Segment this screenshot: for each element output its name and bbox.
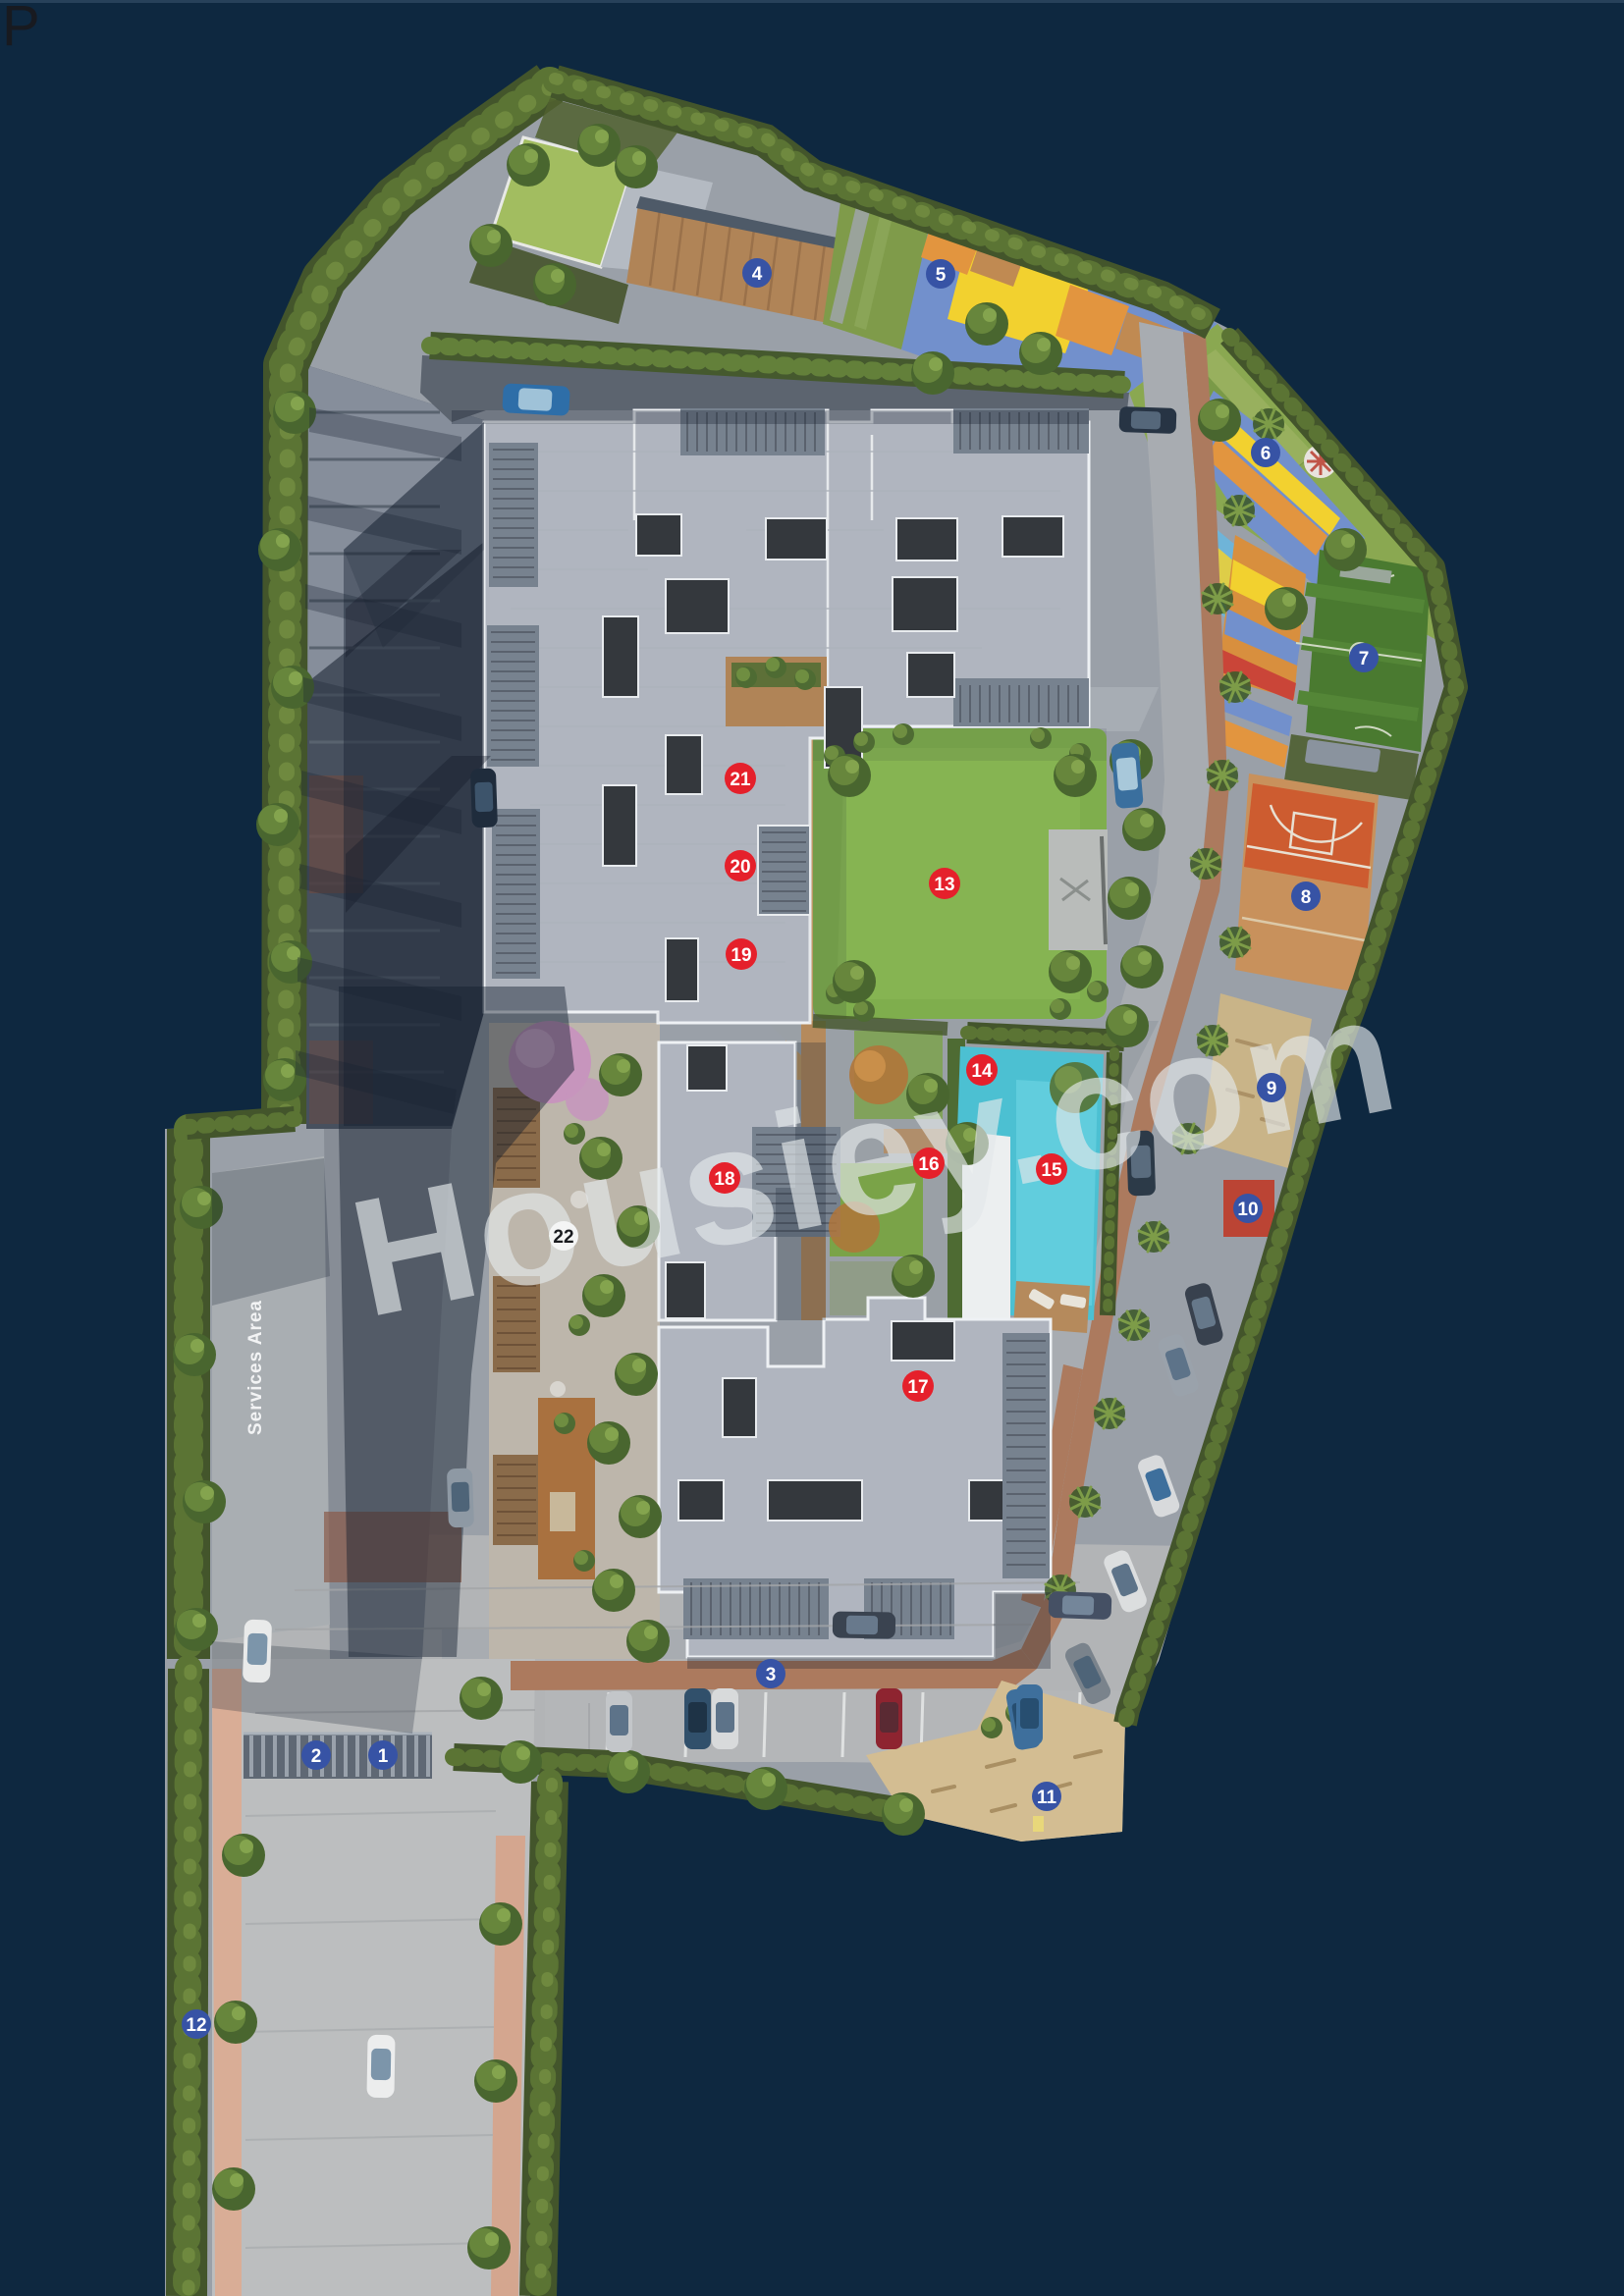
svg-text:8: 8	[1301, 887, 1312, 908]
svg-text:10: 10	[1237, 1200, 1258, 1220]
svg-text:Services Area: Services Area	[245, 1300, 266, 1435]
svg-text:14: 14	[971, 1061, 993, 1082]
svg-text:20: 20	[730, 857, 750, 878]
svg-text:5: 5	[936, 265, 947, 286]
svg-text:22: 22	[553, 1227, 573, 1248]
svg-text:17: 17	[907, 1377, 928, 1398]
svg-text:1: 1	[378, 1746, 389, 1767]
svg-text:6: 6	[1261, 444, 1272, 464]
svg-text:11: 11	[1037, 1788, 1057, 1808]
svg-text:4: 4	[752, 264, 763, 285]
svg-text:7: 7	[1359, 649, 1370, 669]
svg-text:13: 13	[934, 875, 954, 895]
svg-text:16: 16	[918, 1154, 939, 1175]
svg-text:15: 15	[1041, 1160, 1062, 1181]
svg-text:18: 18	[714, 1169, 734, 1190]
svg-text:21: 21	[730, 770, 751, 790]
svg-text:3: 3	[766, 1665, 777, 1685]
svg-text:19: 19	[731, 945, 751, 966]
svg-text:P: P	[2, 0, 40, 58]
svg-text:9: 9	[1267, 1079, 1277, 1099]
svg-text:2: 2	[311, 1746, 322, 1767]
svg-text:12: 12	[186, 2015, 206, 2036]
